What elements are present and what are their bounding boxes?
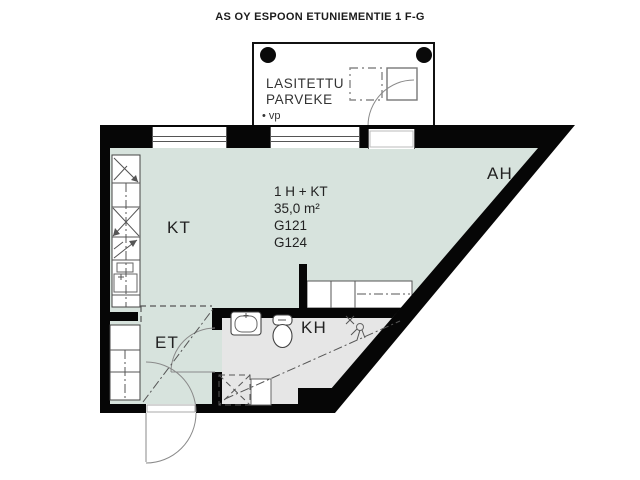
balcony-note: • vp (262, 110, 281, 122)
kitchen-counter (307, 281, 412, 308)
room-label-bathroom: KH (301, 318, 327, 337)
balcony-cabinet (387, 68, 417, 100)
balcony-door-opening (368, 129, 415, 149)
floor-plan-canvas: LASITETTU PARVEKE • vp (0, 0, 640, 480)
balcony: LASITETTU PARVEKE • vp (253, 43, 434, 127)
toilet-icon (273, 315, 292, 348)
room-label-kitchen-living: KT (167, 218, 191, 237)
entry-wall-pier (110, 312, 138, 321)
plan-title: AS OY ESPOON ETUNIEMENTIE 1 F-G (215, 11, 425, 23)
unit-code-2: G124 (274, 235, 308, 250)
window-opening (270, 127, 360, 148)
room-label-alcove: AH (487, 164, 513, 183)
unit-area: 35,0 m² (274, 201, 320, 216)
balcony-pillar-icon (260, 47, 276, 63)
balcony-label-line1: LASITETTU (266, 76, 344, 91)
kitchen-appliance-column (112, 155, 140, 307)
unit-layout: 1 H + KT (274, 184, 328, 199)
room-label-entry: ET (155, 333, 179, 352)
floor-plan-page: LASITETTU PARVEKE • vp (0, 0, 640, 480)
bathroom-wall-block (298, 388, 333, 404)
entry-wardrobe (110, 325, 140, 400)
balcony-label-line2: PARVEKE (266, 92, 333, 107)
balcony-pillar-icon (416, 47, 432, 63)
kitchen-wall-stub (299, 264, 307, 308)
entrance-door-outer-arc (146, 413, 196, 463)
bathroom-left-wall-upper (212, 308, 222, 330)
washbasin-icon (231, 312, 261, 335)
window-opening (152, 127, 227, 148)
unit-code-1: G121 (274, 218, 307, 233)
